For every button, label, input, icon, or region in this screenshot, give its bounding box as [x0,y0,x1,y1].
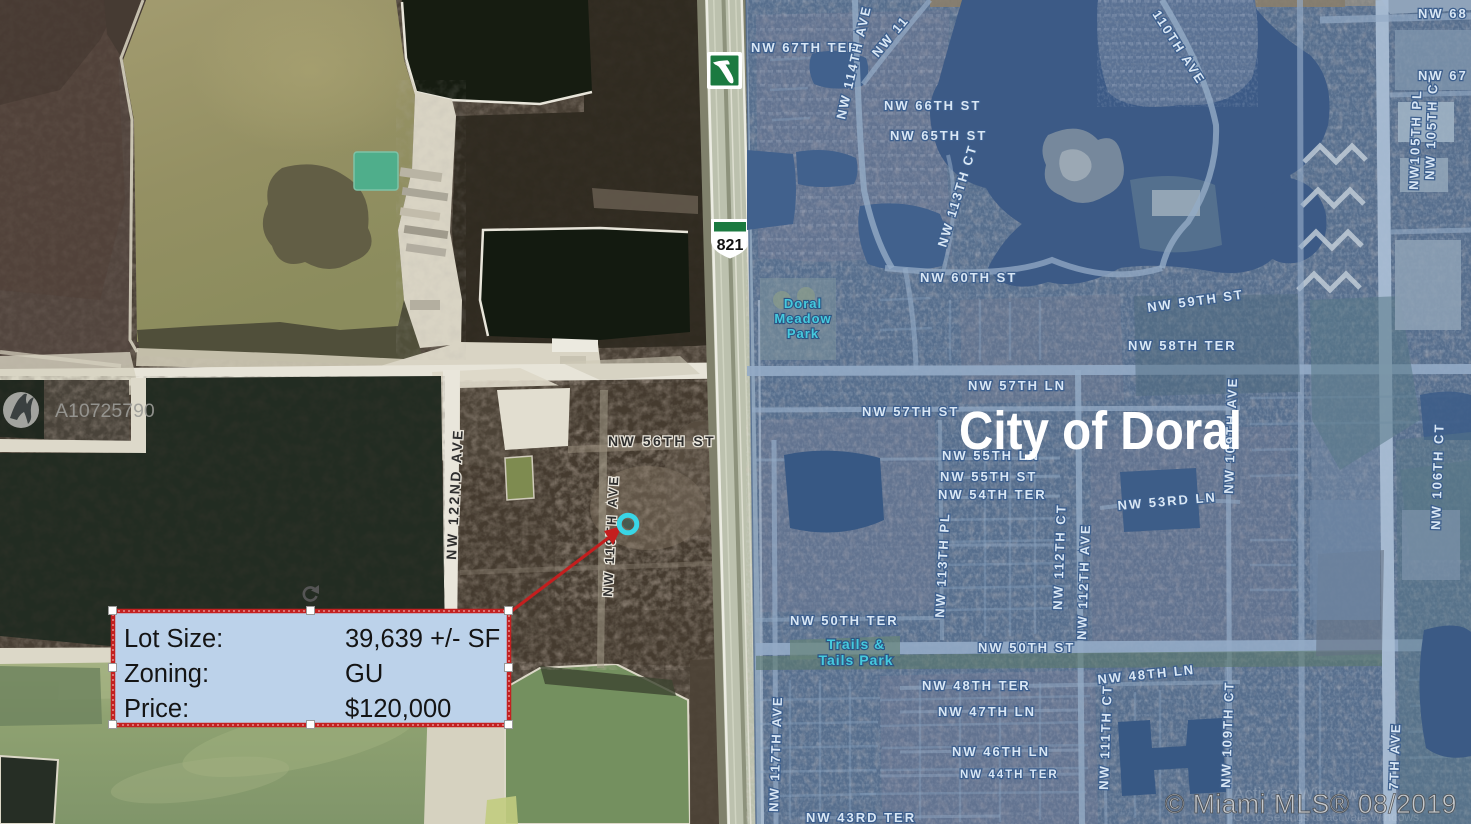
svg-text:Price:: Price: [124,695,189,723]
svg-text:NW 47TH LN: NW 47TH LN [938,704,1036,719]
svg-text:NW 67: NW 67 [1418,68,1468,83]
svg-text:Trails &: Trails & [827,636,886,652]
svg-text:NW 68: NW 68 [1418,6,1468,21]
svg-text:NW 113TH CT: NW 113TH CT [935,143,980,249]
svg-text:NW 66TH ST: NW 66TH ST [884,98,981,113]
svg-text:Meadow: Meadow [774,311,831,326]
svg-text:NW 67TH TER: NW 67TH TER [751,40,860,55]
svg-text:Zoning:: Zoning: [124,660,209,688]
svg-text:NW 57TH ST: NW 57TH ST [862,404,959,419]
svg-text:NW 56TH ST: NW 56TH ST [608,433,716,449]
svg-text:NW 46TH LN: NW 46TH LN [952,744,1050,759]
svg-text:Tails Park: Tails Park [818,652,893,668]
svg-text:© Miami MLS® 08/2019: © Miami MLS® 08/2019 [1165,789,1457,819]
svg-text:NW 109TH CT: NW 109TH CT [1218,680,1237,788]
svg-text:NW 58TH TER: NW 58TH TER [1128,338,1237,353]
svg-text:NW 65TH ST: NW 65TH ST [890,128,987,143]
svg-text:NW 54TH TER: NW 54TH TER [938,487,1047,502]
svg-text:7TH AVE: 7TH AVE [1386,722,1403,790]
svg-text:NW 57TH LN: NW 57TH LN [968,378,1066,393]
svg-text:NW 48TH TER: NW 48TH TER [922,678,1031,693]
svg-text:NW 44TH TER: NW 44TH TER [960,769,1059,781]
svg-text:NW 111TH CT: NW 111TH CT [1096,684,1115,790]
svg-text:NW 55TH ST: NW 55TH ST [940,469,1037,484]
svg-text:NW 59TH ST: NW 59TH ST [1146,287,1244,315]
svg-text:NW 43RD TER: NW 43RD TER [806,810,916,824]
svg-text:Park: Park [787,326,819,341]
svg-text:NW 117TH AVE: NW 117TH AVE [766,695,785,812]
svg-text:NW 60TH ST: NW 60TH ST [920,270,1017,285]
svg-text:NW 48TH LN: NW 48TH LN [1097,662,1196,687]
svg-text:110TH AVE: 110TH AVE [1149,7,1208,87]
svg-text:NW 106TH CT: NW 106TH CT [1428,422,1447,530]
svg-text:NW 50TH ST: NW 50TH ST [978,640,1075,655]
svg-text:GU: GU [345,660,383,688]
svg-text:A10725790: A10725790 [55,400,155,422]
svg-text:NW 50TH TER: NW 50TH TER [790,613,899,628]
svg-text:Lot Size:: Lot Size: [124,625,223,653]
svg-text:NW 53RD LN: NW 53RD LN [1117,489,1217,513]
svg-text:NW 112TH CT: NW 112TH CT [1050,503,1069,610]
svg-text:NW 113TH PL: NW 113TH PL [932,512,953,618]
svg-text:NW 114TH AVE: NW 114TH AVE [833,4,874,121]
svg-text:39,639 +/- SF: 39,639 +/- SF [345,625,500,653]
svg-text:City of Doral: City of Doral [959,401,1242,461]
svg-text:NW 122ND AVE: NW 122ND AVE [443,428,466,561]
svg-text:$120,000: $120,000 [345,695,451,723]
svg-text:Doral: Doral [784,296,822,311]
svg-text:NW 112TH AVE: NW 112TH AVE [1074,523,1093,640]
svg-text:NW 11: NW 11 [869,13,912,60]
svg-text:NW 105TH CT: NW 105TH CT [1422,72,1441,180]
